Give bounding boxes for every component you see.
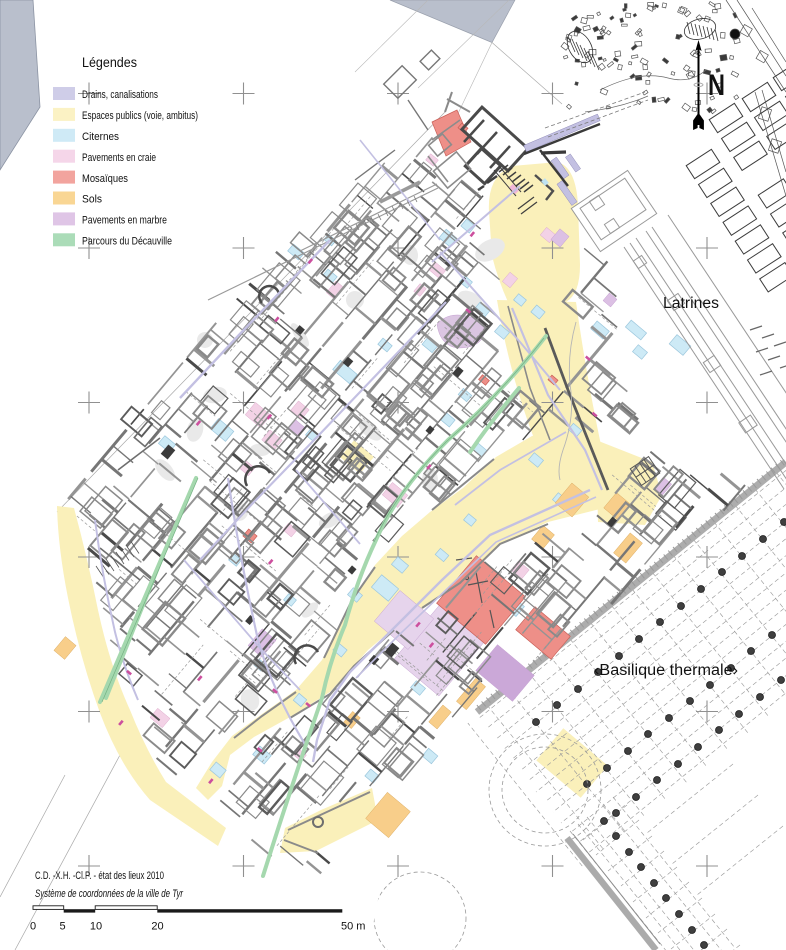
svg-text:Pavements en craie: Pavements en craie [82,152,156,164]
svg-text:Système de coordonnées de la v: Système de coordonnées de la ville de Ty… [35,888,184,900]
svg-text:Latrines: Latrines [663,295,719,312]
svg-text:20: 20 [151,921,163,933]
svg-text:C.D. -X.H. -Cl.P. - état des l: C.D. -X.H. -Cl.P. - état des lieux 2010 [35,870,164,882]
svg-text:10: 10 [90,921,102,933]
svg-text:0: 0 [30,921,36,933]
svg-text:Citernes: Citernes [82,131,119,143]
svg-text:‹Basilique thermale›: ‹Basilique thermale› [594,662,738,679]
svg-text:50 m: 50 m [341,921,365,933]
svg-text:Drains, canalisations: Drains, canalisations [82,89,158,101]
svg-text:Pavements en marbre: Pavements en marbre [82,215,167,227]
svg-text:Légendes: Légendes [82,55,137,70]
svg-text:Espaces publics (voie, ambitus: Espaces publics (voie, ambitus) [82,110,198,122]
svg-text:N: N [708,69,725,102]
svg-text:Mosaïques: Mosaïques [82,173,128,185]
svg-text:Parcours du Décauville: Parcours du Décauville [82,236,172,248]
svg-text:5: 5 [59,921,65,933]
svg-text:Sols: Sols [82,194,102,206]
